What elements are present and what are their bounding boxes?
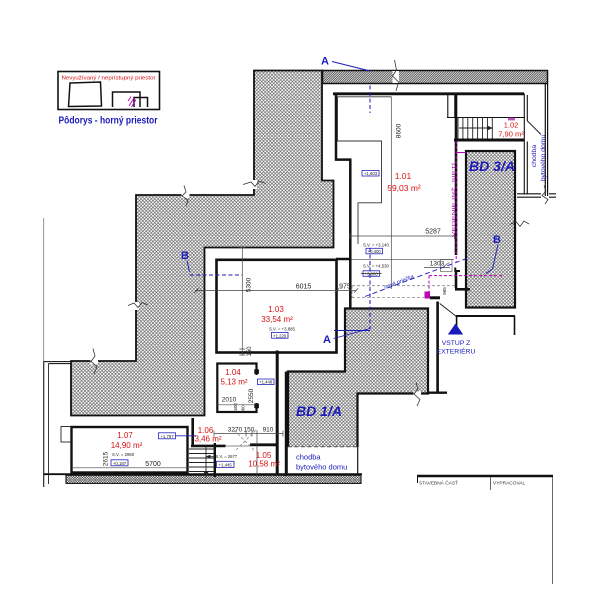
- svg-text:+1,787: +1,787: [160, 434, 174, 439]
- svg-text:5,13 m²: 5,13 m²: [220, 378, 247, 387]
- svg-text:2010: 2010: [222, 397, 237, 404]
- svg-text:965: 965: [442, 287, 447, 295]
- svg-text:1.02: 1.02: [504, 121, 519, 130]
- svg-text:+1,220: +1,220: [273, 333, 287, 338]
- svg-text:B: B: [181, 250, 189, 262]
- svg-text:A: A: [323, 334, 331, 346]
- svg-text:EXTERIÉRU: EXTERIÉRU: [437, 347, 476, 356]
- svg-text:910: 910: [263, 427, 274, 434]
- svg-text:S.V. = +4,530: S.V. = +4,530: [363, 263, 389, 268]
- svg-text:bytového domu: bytového domu: [540, 135, 547, 182]
- svg-text:975: 975: [339, 284, 351, 291]
- svg-text:1.04: 1.04: [225, 368, 241, 377]
- svg-text:2550: 2550: [248, 388, 255, 403]
- svg-text:7,90 m²: 7,90 m²: [498, 130, 524, 139]
- svg-text:BD 1/A: BD 1/A: [296, 403, 342, 419]
- svg-text:8600: 8600: [395, 123, 402, 138]
- svg-text:S.V. = 2960: S.V. = 2960: [112, 452, 135, 457]
- svg-text:33,54 m²: 33,54 m²: [261, 315, 293, 324]
- svg-text:1.03: 1.03: [268, 305, 284, 314]
- svg-text:150: 150: [247, 346, 253, 357]
- svg-text:5300: 5300: [246, 277, 253, 292]
- svg-text:1.07: 1.07: [117, 431, 133, 440]
- svg-text:960: 960: [241, 405, 246, 413]
- svg-text:1303: 1303: [430, 261, 445, 268]
- svg-text:1500: 1500: [233, 403, 238, 413]
- svg-text:6015: 6015: [296, 284, 312, 291]
- svg-text:VYPRACOVAL: VYPRACOVAL: [493, 481, 526, 487]
- svg-text:+1,445: +1,445: [219, 463, 233, 468]
- svg-text:+1,448: +1,448: [259, 380, 273, 385]
- svg-text:chodba: chodba: [296, 453, 321, 462]
- svg-text:Pôdorys - horný priestor: Pôdorys - horný priestor: [59, 116, 158, 127]
- svg-text:S.V. = +3,140: S.V. = +3,140: [363, 242, 389, 247]
- svg-text:3270: 3270: [228, 427, 243, 434]
- svg-text:+0,187: +0,187: [113, 461, 127, 466]
- svg-text:10,58 m²: 10,58 m²: [248, 459, 280, 468]
- svg-text:VSTUP Z: VSTUP Z: [442, 340, 471, 347]
- svg-text:B: B: [493, 234, 501, 246]
- svg-text:1.01: 1.01: [395, 171, 412, 181]
- svg-text:3,46 m²: 3,46 m²: [194, 435, 221, 444]
- svg-text:bytového domu: bytového domu: [296, 463, 347, 472]
- svg-text:Nevyužívaný / neprístupný prie: Nevyužívaný / neprístupný priestor: [62, 76, 156, 82]
- svg-text:5287: 5287: [425, 229, 441, 236]
- svg-text:2615: 2615: [103, 451, 110, 466]
- svg-text:A: A: [321, 56, 329, 68]
- svg-text:+1,603: +1,603: [364, 171, 378, 176]
- svg-text:14,90 m²: 14,90 m²: [111, 441, 143, 450]
- svg-text:chodba: chodba: [531, 145, 538, 168]
- svg-text:59,03 m²: 59,03 m²: [387, 183, 421, 193]
- svg-text:S.V. = +3,885: S.V. = +3,885: [269, 326, 295, 331]
- svg-text:5700: 5700: [145, 461, 161, 468]
- svg-text:S.V. = 2677: S.V. = 2677: [216, 454, 238, 459]
- svg-text:BD 3/A: BD 3/A: [469, 158, 515, 174]
- svg-text:150: 150: [244, 427, 255, 434]
